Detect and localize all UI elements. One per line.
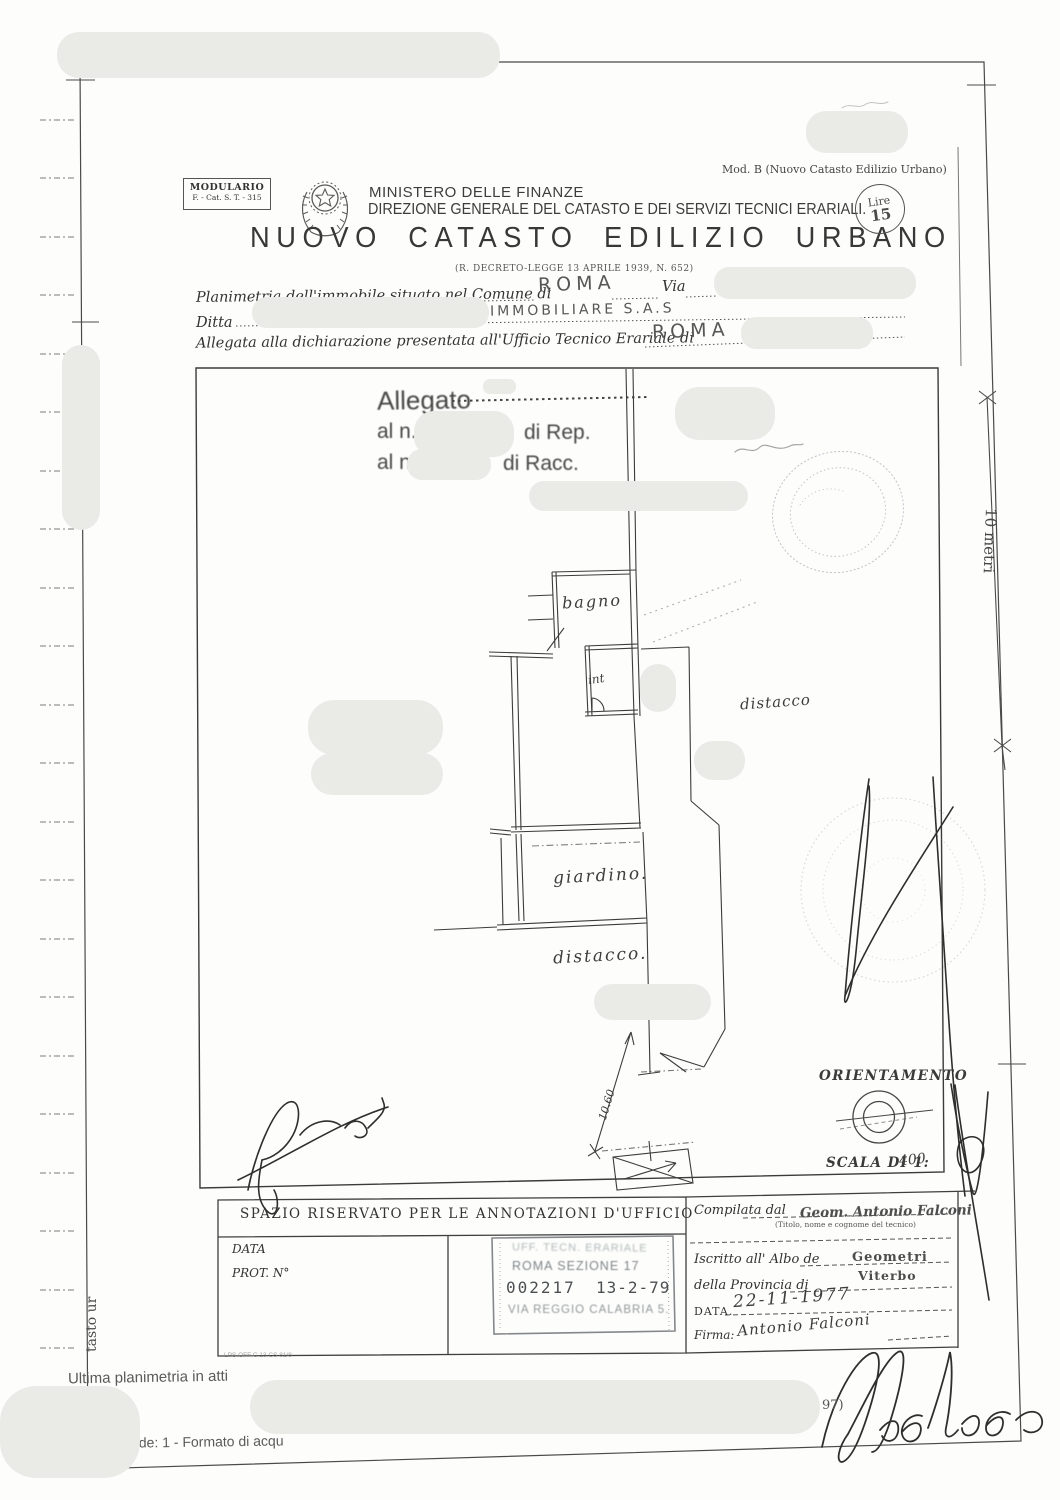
scale-bar: 10 metri xyxy=(979,391,1011,770)
redaction xyxy=(741,317,873,349)
redaction xyxy=(308,700,443,755)
allegata-label: Allegata alla dichiarazione presentata a… xyxy=(196,330,694,351)
orientation-title: ORIENTAMENTO xyxy=(819,1068,968,1084)
scale-bar-label: 10 metri xyxy=(980,508,1000,574)
albo-value: Geometri xyxy=(852,1250,928,1265)
redaction xyxy=(250,1380,820,1434)
page-number-fragment: 97) xyxy=(822,1398,844,1413)
protocol-stamp-number: 002217 xyxy=(506,1278,576,1297)
protocol-stamp-line4: VIA REGGIO CALABRIA 5. xyxy=(508,1304,669,1316)
redaction xyxy=(675,387,775,440)
scale-value: 400 xyxy=(898,1151,926,1170)
redaction xyxy=(0,1386,140,1478)
redaction xyxy=(594,984,711,1020)
round-ink-stamp-lower xyxy=(801,798,985,982)
tecnico-name: Geom. Antonio Falconi xyxy=(800,1203,972,1222)
modulario-line2: F. - Cat. S. T. - 315 xyxy=(184,193,270,202)
office-data-label: DATA xyxy=(232,1242,266,1256)
protocol-stamp-date: 13-2-79 xyxy=(596,1278,670,1297)
area-label-distacco-right: distacco xyxy=(739,691,811,714)
scanned-cadastral-document: 10 metri xyxy=(0,0,1060,1500)
micro-print-note: LPS OFF C 13 CS 81/8 xyxy=(224,1352,292,1359)
redaction xyxy=(57,32,500,78)
area-label-distacco-bottom: distacco. xyxy=(553,944,648,969)
modulario-line1: MODULARIO xyxy=(184,182,270,193)
protocol-stamp-line1: UFF. TECN. ERARIALE xyxy=(512,1241,648,1254)
redaction xyxy=(714,267,916,299)
provincia-value: Viterbo xyxy=(858,1268,917,1283)
redaction xyxy=(252,297,489,328)
area-label-giardino: giardino. xyxy=(553,864,649,889)
surveyor-data-label: DATA. xyxy=(694,1305,733,1318)
room-label-bagno: bagno xyxy=(562,590,623,612)
allegato-rep-suffix: di Rep. xyxy=(524,421,591,445)
allegato-racc-suffix: di Racc. xyxy=(503,452,579,476)
redaction xyxy=(694,741,745,780)
redaction xyxy=(529,481,748,511)
office-box-header: SPAZIO RISERVATO PER LE ANNOTAZIONI D'UF… xyxy=(240,1206,694,1222)
office-prot-label: PROT. N° xyxy=(232,1266,289,1280)
redaction xyxy=(407,449,491,480)
document-title: NUOVO CATASTO EDILIZIO URBANO xyxy=(250,222,952,255)
iscritto-label: Iscritto all' Albo de xyxy=(694,1252,819,1267)
dimension-label: 10.60 xyxy=(596,1088,618,1122)
modulario-box: MODULARIO F. - Cat. S. T. - 315 xyxy=(183,178,271,210)
protocol-stamp-line2: ROMA SEZIONE 17 xyxy=(512,1259,640,1273)
firma-value: Antonio Falconi xyxy=(736,1310,871,1340)
ministry-name: MINISTERO DELLE FINANZE xyxy=(369,184,584,201)
redaction xyxy=(483,379,516,394)
firma-label: Firma: xyxy=(694,1328,734,1342)
ditta-value: IMMOBILIARE S.A.S xyxy=(490,300,675,319)
directorate-name: DIREZIONE GENERALE DEL CATASTO E DEI SER… xyxy=(368,201,866,219)
footer-line1: Ultima planimetria in atti xyxy=(68,1368,228,1388)
margin-tick-marks xyxy=(40,120,76,1465)
form-dotted-lines xyxy=(236,296,952,1340)
orientation-compass-icon xyxy=(836,1091,933,1143)
side-rotated-fragment: tasto ur xyxy=(84,1297,100,1352)
erariale-value: ROMA xyxy=(652,319,730,344)
compilata-label: Compilata dal xyxy=(694,1203,786,1218)
round-ink-stamp-upper xyxy=(757,435,920,590)
redaction xyxy=(311,753,443,795)
redaction xyxy=(62,345,100,530)
via-label: Via xyxy=(662,279,686,295)
redaction xyxy=(806,111,908,153)
redaction xyxy=(640,664,676,712)
ditta-label: Ditta xyxy=(196,315,233,331)
mod-b-label: Mod. B (Nuovo Catasto Edilizio Urbano) xyxy=(722,163,947,176)
room-label-int: int xyxy=(587,671,605,687)
lire-value: 15 xyxy=(869,204,892,225)
comune-value: ROMA xyxy=(538,272,616,297)
titolo-note: (Titolo, nome e cognome del tecnico) xyxy=(775,1220,916,1229)
allegato-rep-prefix: al n. xyxy=(377,420,417,444)
